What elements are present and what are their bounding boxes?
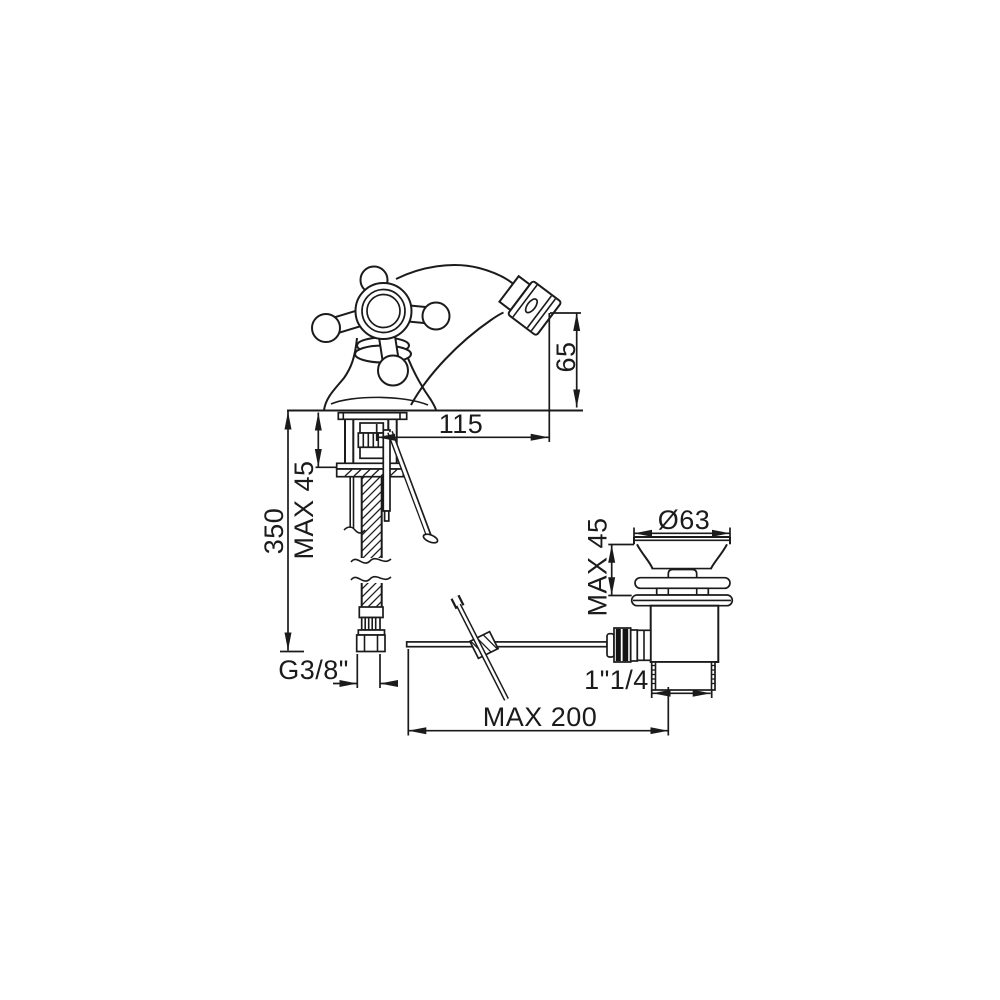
dimension-deck-thickness-waste: MAX 45 <box>583 517 635 616</box>
hose-nut <box>357 635 385 652</box>
technical-drawing-sheet: 65 115 350 MAX 45 G3/8" Ø63 MAX 45 <box>0 0 1000 1000</box>
faucet-mounting-hardware <box>337 413 439 545</box>
lift-rod <box>390 432 439 545</box>
dim-spout-reach-label: 115 <box>439 409 484 439</box>
waste-funnel-left <box>637 544 653 568</box>
spout-top-outline <box>396 265 517 287</box>
plug-tab <box>668 570 696 578</box>
clamp-stud <box>383 430 390 511</box>
dim-spout-height-label: 65 <box>551 341 581 372</box>
dim-supply-thread-label: G3/8" <box>278 655 349 685</box>
dim-waste-thread-label: 1"1/4 <box>584 665 649 695</box>
pop-up-rod-assembly <box>407 597 607 700</box>
dim-waste-flange-diameter-label: Ø63 <box>658 505 711 535</box>
bidet-mixer-dimension-drawing: 65 115 350 MAX 45 G3/8" Ø63 MAX 45 <box>0 0 1000 1000</box>
pipe-break-upper <box>351 559 391 563</box>
cross-handle <box>312 267 450 386</box>
dim-supply-length-label: 350 <box>259 508 289 555</box>
handle-ball-right <box>423 303 450 330</box>
bidet-mixer-body <box>312 265 562 410</box>
aerator <box>496 272 561 336</box>
waste-funnel-right <box>711 544 727 568</box>
dim-deck-thickness-waste-label: MAX 45 <box>583 517 613 616</box>
handle-ball-bottom <box>378 356 408 386</box>
base-foot-arc <box>331 397 428 405</box>
pipe-break-lower <box>351 577 391 581</box>
clamp-plate-upper <box>337 463 404 469</box>
horizontal-rod <box>407 642 607 647</box>
dimension-spout-height: 65 <box>549 313 581 442</box>
dimension-waste-flange-diameter: Ø63 <box>634 505 730 537</box>
dim-rod-length-label: MAX 200 <box>483 702 598 732</box>
waste-side-knob <box>607 628 651 662</box>
dimension-deck-thickness-faucet: MAX 45 <box>289 413 338 560</box>
body-right-outline <box>406 353 436 410</box>
handle-ball-left <box>312 314 340 342</box>
waste-body <box>651 606 719 662</box>
dim-deck-thickness-faucet-label: MAX 45 <box>289 460 319 559</box>
waste-threaded-outlet <box>652 662 715 690</box>
waste-washer-upper <box>635 578 730 589</box>
dimension-supply-thread: G3/8" <box>278 654 393 688</box>
